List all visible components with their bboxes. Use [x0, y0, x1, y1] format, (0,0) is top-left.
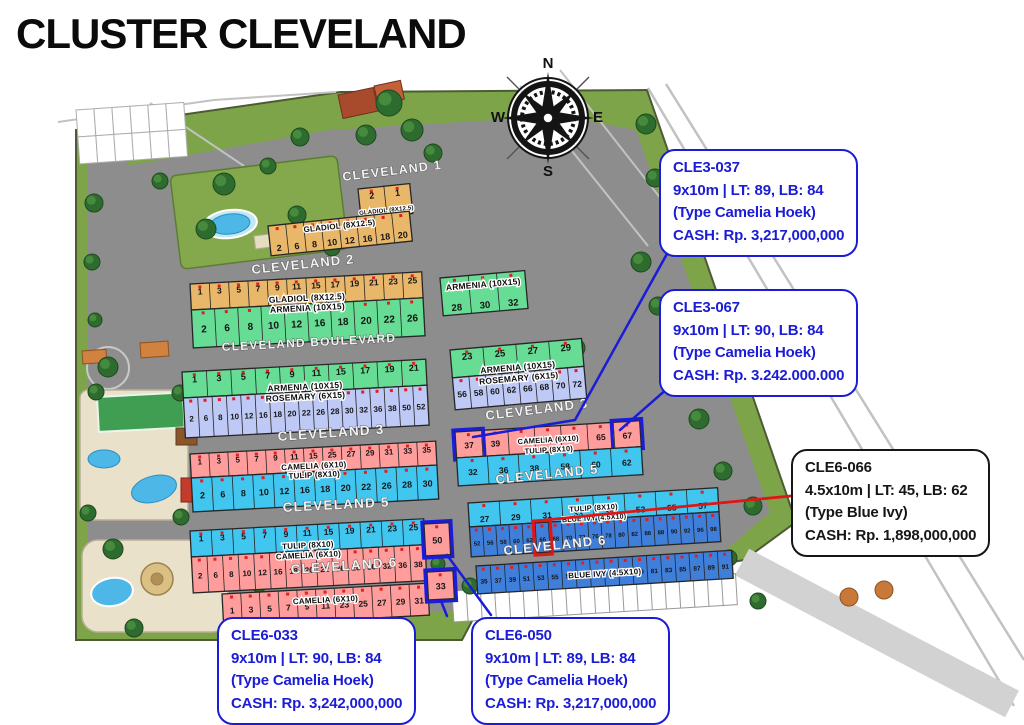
lot-number: 8 [312, 239, 318, 249]
lot-number: 26 [381, 480, 392, 491]
lot-number: 17 [330, 279, 340, 289]
lot-number: 11 [290, 452, 299, 461]
lot-number: 86 [644, 531, 652, 537]
lot-number: 22 [361, 482, 372, 493]
lot-number: 18 [273, 410, 283, 419]
lot-number: 56 [487, 540, 495, 546]
lot-number: 7 [262, 530, 268, 540]
lot-number: 23 [388, 276, 398, 286]
lot-number: 91 [722, 564, 730, 571]
svg-text:N: N [543, 55, 554, 72]
amenity [170, 156, 348, 270]
lot-number: 98 [710, 527, 718, 533]
lot-number: 26 [316, 408, 326, 417]
unit-type: (Type Camelia Hoek) [231, 670, 402, 693]
lot-number: 11 [303, 528, 313, 538]
lot-number: 35 [422, 445, 432, 454]
unit-type: (Type Camelia Hoek) [673, 202, 844, 225]
lot-number: 62 [622, 457, 632, 468]
lot-number: 10 [242, 569, 252, 578]
lot-number: 28 [402, 479, 413, 490]
lot-number: 19 [350, 278, 360, 288]
lot-number: 31 [414, 595, 424, 605]
amenity [181, 478, 192, 502]
unit-price: CASH: Rp. 3,217,000,000 [673, 225, 844, 248]
lot-number: 7 [286, 602, 292, 612]
lot-number: 56 [457, 389, 468, 400]
lot-number: 96 [697, 528, 705, 534]
unit-code: CLE3-067 [673, 297, 844, 320]
lot-number: 6 [224, 323, 231, 334]
lot-number: 30 [345, 406, 355, 415]
lot-number: 53 [537, 575, 545, 582]
unit-code: CLE6-066 [805, 457, 976, 480]
lot-number: 29 [511, 512, 521, 523]
lot-number: 8 [241, 488, 247, 498]
lot-number: 29 [560, 342, 571, 354]
lot-number: 32 [508, 297, 519, 309]
lot-number: 9 [283, 529, 289, 539]
amenity [97, 392, 185, 431]
callout-cle3-067: CLE3-067 9x10m | LT: 90, LB: 84 (Type Ca… [659, 289, 858, 397]
unit-size: 9x10m | LT: 89, LB: 84 [673, 180, 844, 203]
lot-number: 70 [556, 380, 567, 391]
lot-number: 12 [291, 319, 303, 331]
lot-number: 36 [373, 405, 383, 414]
lot-number: 58 [473, 387, 484, 398]
lot-number: 27 [527, 345, 538, 357]
lot-number: 25 [358, 598, 368, 608]
lot-number: 2 [369, 190, 375, 200]
lot-number: 21 [369, 277, 379, 287]
lot-number: 55 [551, 574, 559, 581]
lot-number: 25 [327, 450, 337, 459]
lot-number: 17 [360, 365, 371, 376]
callout-cle6-050: CLE6-050 9x10m | LT: 89, LB: 84 (Type Ca… [471, 617, 670, 725]
lot-number: 25 [408, 522, 418, 532]
unit-code: CLE3-037 [673, 157, 844, 180]
lot-number: 90 [671, 529, 679, 535]
lot-number: 51 [523, 576, 531, 583]
lot-number: 20 [360, 316, 372, 328]
lot-number: 18 [320, 484, 331, 495]
outside-lot-grid [76, 102, 188, 163]
unit-code: CLE6-033 [231, 625, 402, 648]
amenity [140, 341, 169, 358]
lot-number: 10 [327, 237, 338, 248]
lot-number: 15 [311, 280, 321, 290]
lot-row: 50 [422, 521, 453, 558]
lot-number: 6 [220, 489, 226, 499]
lot-number: 66 [523, 383, 534, 394]
lot-number: 18 [380, 231, 391, 242]
lot-number: 85 [679, 566, 687, 573]
lot-number: 10 [268, 320, 280, 332]
lot-number: 29 [365, 448, 375, 457]
lot-number: 1 [395, 188, 401, 198]
lot-number: 67 [622, 430, 632, 441]
lot-number: 35 [480, 578, 488, 585]
lot-number: 36 [398, 561, 408, 570]
lot-number: 82 [631, 532, 639, 538]
unit-price: CASH: Rp. 1,898,000,000 [805, 525, 976, 548]
lot-number: 20 [340, 483, 351, 494]
lot-number: 50 [402, 403, 412, 412]
lot-number: 16 [259, 411, 269, 420]
lot-number: 12 [244, 411, 254, 420]
unit-price: CASH: Rp. 3,217,000,000 [485, 693, 656, 716]
svg-text:E: E [593, 109, 603, 126]
lot-number: 2 [201, 324, 208, 335]
unit-type: (Type Camelia Hoek) [485, 670, 656, 693]
lot-number: 39 [490, 438, 500, 449]
unit-size: 4.5x10m | LT: 45, LB: 62 [805, 480, 976, 503]
amenity [875, 581, 893, 599]
lot-number: 12 [344, 235, 355, 246]
lot-number: 32 [468, 467, 478, 478]
lot-number: 28 [330, 407, 340, 416]
lot-number: 1 [198, 533, 204, 543]
lot-number: 19 [345, 525, 355, 535]
lot-number: 20 [397, 229, 408, 240]
lot-number: 83 [665, 567, 673, 574]
lot-number: 39 [509, 577, 517, 584]
lot-number: 1 [192, 374, 198, 384]
lot-row: 283032ARMENIA (10X15) [440, 271, 528, 316]
lot-number: 37 [464, 440, 474, 451]
lot-number: 26 [407, 313, 419, 325]
lot-number: 25 [407, 275, 417, 285]
site-plan-map: 21GLADIOL (8X12.5)2681012161820GLADIOL (… [0, 0, 1024, 724]
lot-number: 16 [273, 567, 283, 576]
lot-number: 38 [388, 404, 398, 413]
lot-number: 6 [294, 241, 300, 251]
unit-price: CASH: Rp. 3.242.000.000 [673, 365, 844, 388]
lot-number: 81 [651, 568, 659, 575]
lot-number: 27 [480, 514, 490, 525]
lot-number: 23 [387, 523, 397, 533]
lot-number: 80 [618, 532, 626, 538]
lot-number: 11 [292, 281, 302, 291]
lot-number: 10 [259, 487, 270, 498]
lot-number: 5 [236, 284, 242, 294]
unit-type: (Type Blue Ivy) [805, 502, 976, 525]
lot-number: 1 [230, 605, 236, 615]
lot-number: 32 [359, 405, 369, 414]
lot-number: 50 [432, 535, 443, 546]
lot-number: 31 [384, 447, 394, 456]
lot-number: 29 [396, 596, 406, 606]
lot-number: 21 [409, 363, 420, 374]
lot-number: 30 [422, 478, 433, 489]
callout-cle6-066: CLE6-066 4.5x10m | LT: 45, LB: 62 (Type … [791, 449, 990, 557]
lot-number: 16 [314, 318, 326, 330]
unit-type: (Type Camelia Hoek) [673, 342, 844, 365]
lot-number: 52 [416, 402, 426, 411]
lot-number: 10 [230, 412, 240, 421]
lot-number: 89 [707, 564, 715, 571]
lot-number: 18 [337, 317, 349, 329]
amenity [88, 450, 120, 468]
lot-number: 30 [479, 300, 490, 312]
unit-size: 9x10m | LT: 90, LB: 84 [231, 648, 402, 671]
lot-number: 20 [287, 409, 297, 418]
amenity [840, 588, 858, 606]
lot-number: 92 [684, 528, 692, 534]
lot-number: 15 [324, 526, 334, 536]
lot-number: 60 [490, 386, 501, 397]
lot-number: 1 [197, 286, 203, 296]
lot-number: 15 [336, 366, 347, 377]
lot-number: 65 [596, 432, 606, 443]
lot-number: 28 [451, 302, 462, 314]
lot-number: 88 [657, 530, 665, 536]
unit-price: CASH: Rp. 3,242,000,000 [231, 693, 402, 716]
lot-number: 2 [276, 243, 282, 253]
lot-number: 15 [309, 451, 319, 460]
lot-row: 33 [425, 569, 457, 603]
lot-number: 87 [693, 565, 701, 572]
lot-number: 2 [200, 490, 206, 500]
lot-number: 12 [258, 568, 268, 577]
lot-number: 12 [279, 486, 290, 497]
lot-number: 38 [414, 560, 424, 569]
amenity [151, 573, 163, 585]
lot-number: 7 [265, 370, 271, 380]
lot-number: 7 [255, 283, 261, 293]
lot-number: 16 [362, 233, 373, 244]
lot-number: 27 [346, 449, 356, 458]
unit-size: 9x10m | LT: 90, LB: 84 [673, 320, 844, 343]
lot-number: 37 [494, 577, 502, 584]
lot-number: 52 [474, 541, 482, 547]
lot-number: 5 [241, 372, 247, 382]
lot-number: 5 [267, 603, 273, 613]
lot-number: 33 [436, 581, 447, 592]
lot-number: 68 [539, 382, 550, 393]
lot-number: 9 [289, 369, 295, 379]
lot-number: 5 [241, 531, 247, 541]
lot-number: 72 [572, 379, 583, 390]
lot-number: 11 [311, 368, 321, 378]
lot-number: 19 [384, 364, 395, 375]
unit-size: 9x10m | LT: 89, LB: 84 [485, 648, 656, 671]
lot-number: 3 [220, 532, 226, 542]
lot-number: 8 [247, 322, 254, 333]
svg-text:S: S [543, 163, 553, 180]
callout-cle3-037: CLE3-037 9x10m | LT: 89, LB: 84 (Type Ca… [659, 149, 858, 257]
lot-number: 22 [302, 408, 312, 417]
lot-number: 21 [366, 524, 376, 534]
unit-code: CLE6-050 [485, 625, 656, 648]
lot-number: 3 [217, 285, 223, 295]
lot-number: 33 [403, 446, 413, 455]
lot-number: 9 [275, 282, 281, 292]
lot-number: 3 [248, 604, 254, 614]
lot-number: 3 [216, 373, 222, 383]
page-title: CLUSTER CLEVELAND [16, 10, 466, 58]
lot-number: 23 [461, 351, 472, 363]
lot-number: 27 [377, 597, 387, 607]
lot-number: 25 [494, 348, 506, 360]
lot-number: 62 [506, 384, 517, 395]
lot-number: 22 [384, 314, 396, 326]
svg-text:W: W [491, 109, 506, 126]
callout-cle6-033: CLE6-033 9x10m | LT: 90, LB: 84 (Type Ca… [217, 617, 416, 725]
lot-number: 16 [300, 485, 311, 496]
